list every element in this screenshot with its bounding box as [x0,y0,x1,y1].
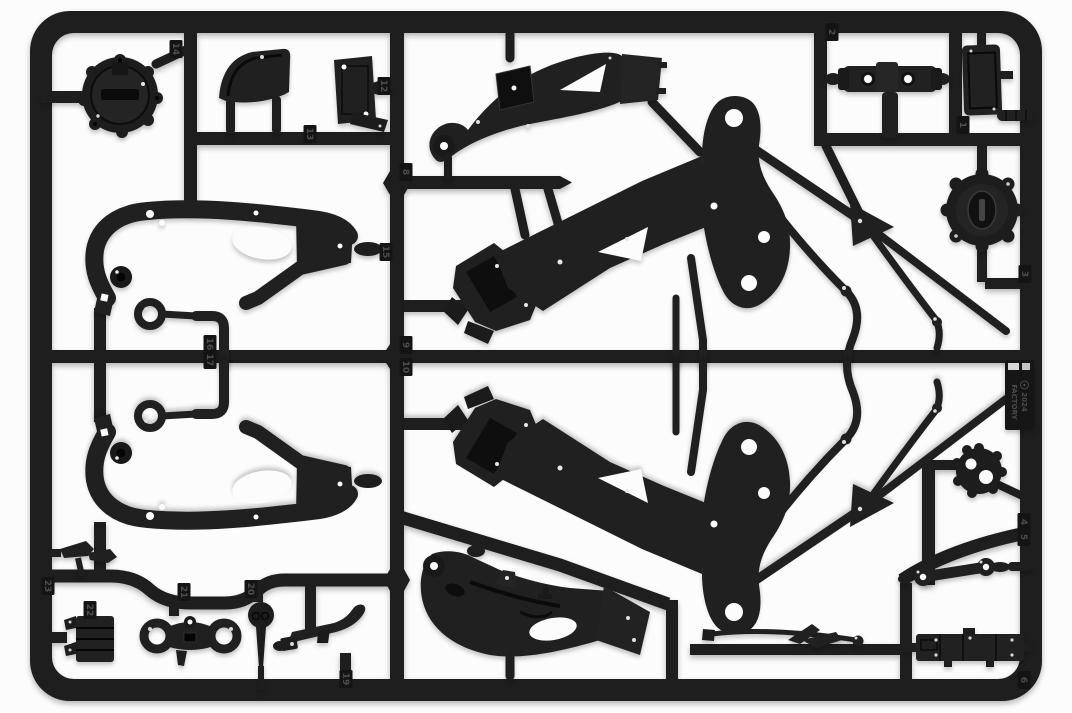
gate-number-10: 10 [400,358,413,376]
gate-number-13: 13 [304,125,317,143]
gate-number-21: 21 [178,583,191,601]
gate-number-5: 5 [1018,528,1031,546]
svg-text:8: 8 [400,169,410,175]
svg-text:23: 23 [42,580,52,593]
svg-text:1: 1 [957,122,967,128]
svg-text:22: 22 [84,604,94,617]
gate-number-9: 9 [400,336,413,354]
mold-tag: 2024 FACTORY [1005,360,1034,430]
tag-year: 2024 [1020,392,1028,412]
ignition-cover [941,168,1024,253]
gate-number-14: 14 [170,40,183,58]
bottom-right-bar [690,644,902,655]
svg-text:2: 2 [826,29,836,35]
svg-text:20: 20 [245,583,255,596]
right-vertical-bar-1 [814,22,827,146]
svg-text:17: 17 [204,354,214,367]
gate-number-1: 1 [957,116,970,134]
tag-brand: FACTORY [1010,384,1018,420]
gate-number-16: 16 [204,335,217,353]
svg-text:21: 21 [178,586,188,599]
gate-number-8: 8 [400,163,413,181]
hose-cylinder [997,110,1033,121]
gate-number-23: 23 [42,577,55,595]
gate-number-22: 22 [84,601,97,619]
svg-text:13: 13 [304,128,314,141]
svg-text:5: 5 [1018,534,1028,540]
svg-text:4: 4 [1018,519,1028,525]
svg-text:3: 3 [1019,271,1029,277]
sprue-svg: 2024 FACTORY 141312218153910161745623222… [0,0,1072,713]
gate-number-12: 12 [378,77,391,95]
svg-text:16: 16 [204,338,214,351]
svg-text:9: 9 [400,342,410,348]
main-horizontal-bar [41,350,1031,363]
svg-text:19: 19 [340,673,350,686]
svg-text:15: 15 [380,246,390,259]
gate-number-19: 19 [340,670,353,688]
tag-window [1022,363,1030,370]
gate-number-20: 20 [245,580,258,598]
left-sub-bar [185,132,397,145]
svg-text:12: 12 [378,80,388,93]
gate-number-3: 3 [1019,265,1032,283]
gate-number-2: 2 [826,23,839,41]
tag-window [1008,363,1019,370]
brand-logo-dot [1023,384,1025,386]
gate-pad [354,242,382,256]
svg-text:6: 6 [1018,677,1028,683]
svg-text:10: 10 [400,361,410,374]
right-sub-bar [820,133,1031,146]
gate-number-17: 17 [204,351,217,369]
sprue-photo: 2024 FACTORY 141312218153910161745623222… [0,0,1072,713]
svg-text:14: 14 [170,43,180,56]
gate-number-6: 6 [1018,671,1031,689]
gate-number-15: 15 [380,243,393,261]
